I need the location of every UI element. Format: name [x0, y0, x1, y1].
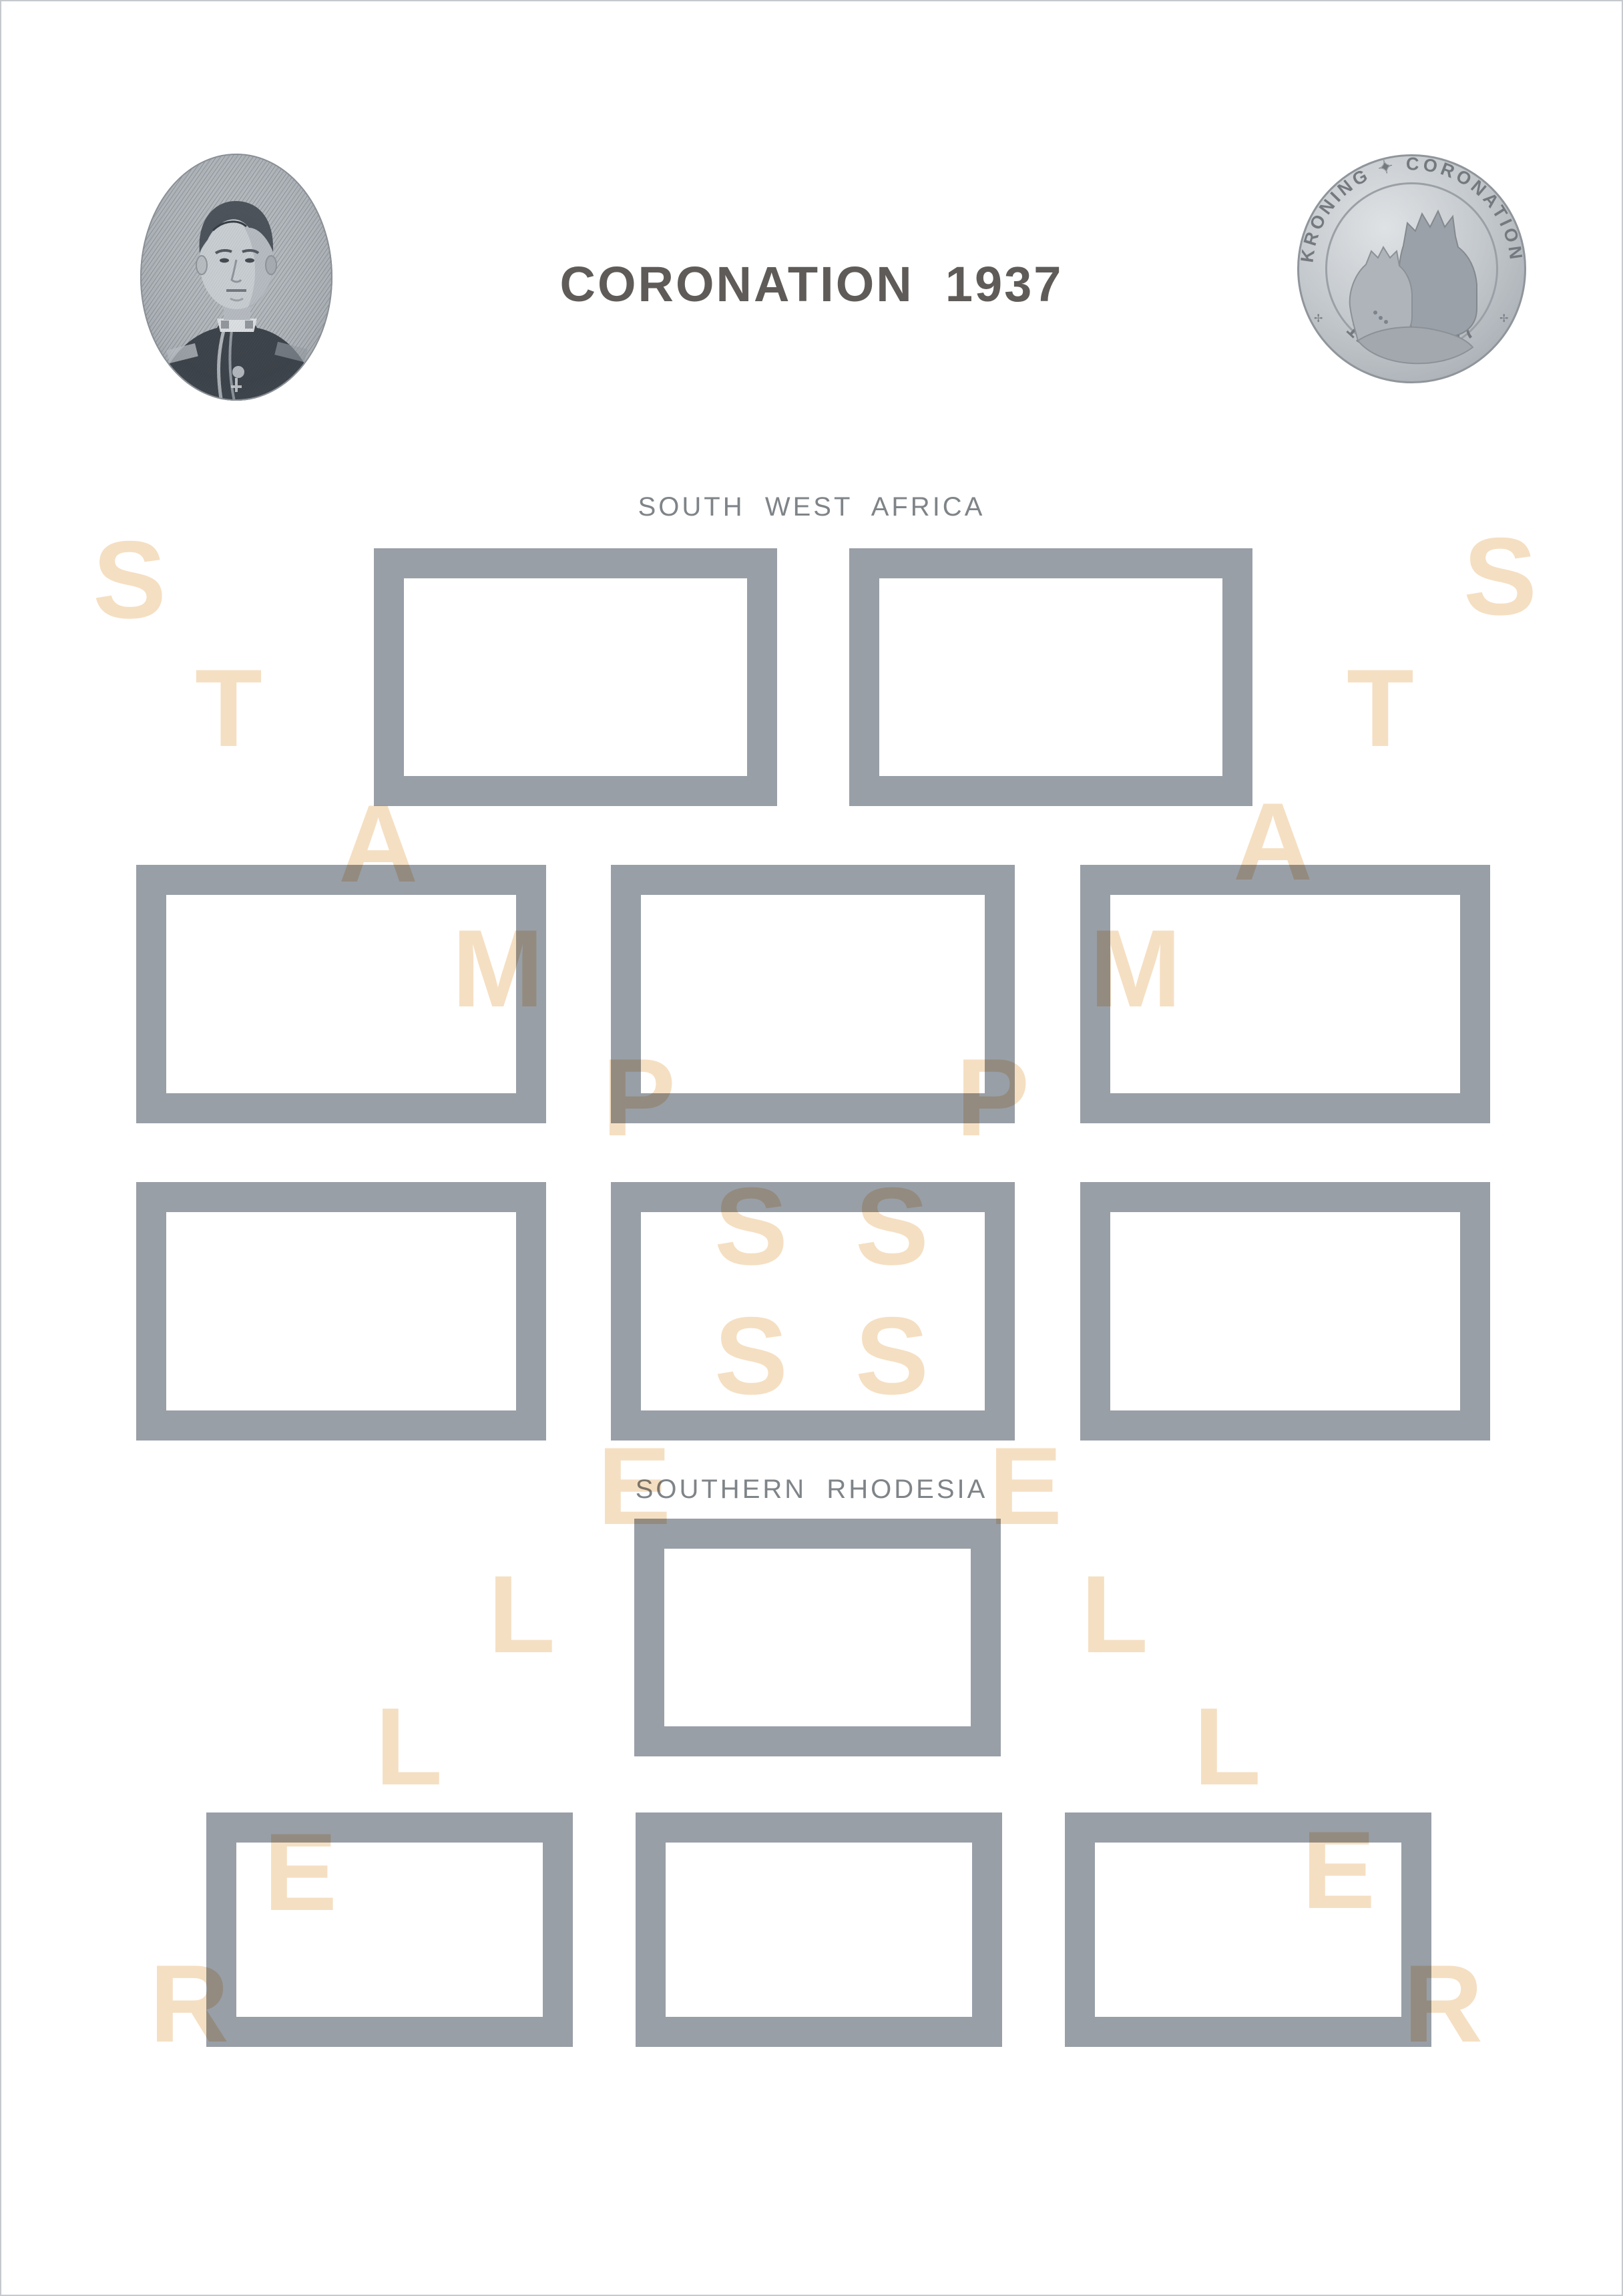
stamp-frame-sr-r2c1	[206, 1812, 573, 2047]
stamp-frame-sr-r2c3	[1065, 1812, 1431, 2047]
stamp-frame-swa-r2c3	[1080, 865, 1490, 1123]
stamp-frame-swa-r3c3	[1080, 1182, 1490, 1441]
album-page: CORONATION 1937 KRONING ✦ CORONATION 12 …	[0, 0, 1623, 2296]
stamp-frame-swa-r2c2	[611, 865, 1015, 1123]
stamp-frame-swa-r2c1	[136, 865, 546, 1123]
stamp-frame-sr-r1c1	[634, 1519, 1001, 1756]
stamp-frame-swa-r3c2	[611, 1182, 1015, 1441]
stamp-frame-swa-r3c1	[136, 1182, 546, 1441]
stamp-frame-sr-r2c2	[636, 1812, 1002, 2047]
frames-layer	[1, 1, 1622, 2295]
stamp-frame-swa-r1c2	[849, 548, 1252, 806]
stamp-frame-swa-r1c1	[374, 548, 777, 806]
